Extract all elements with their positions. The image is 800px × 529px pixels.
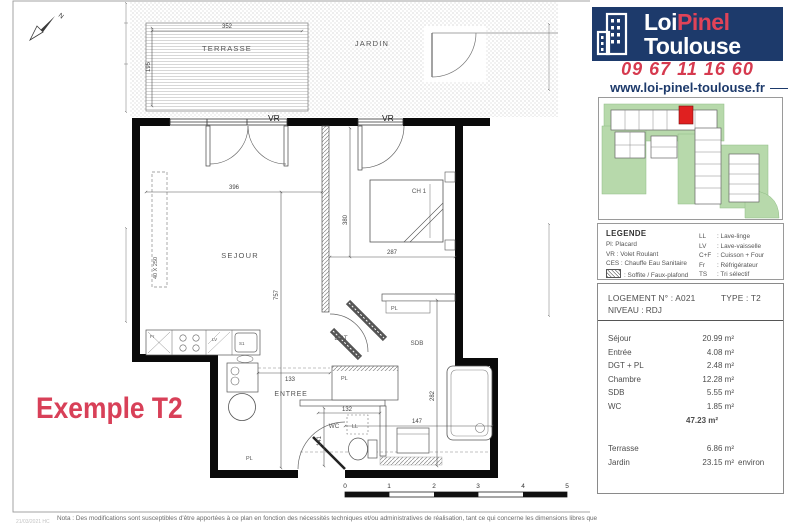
legend-item: Pl: Placard (606, 240, 698, 250)
windows (170, 119, 403, 125)
total-area: 47.23 m² (686, 414, 744, 428)
area-row: Chambre12.28 m² (608, 373, 744, 387)
svg-text:5: 5 (565, 483, 569, 490)
outdoor-areas: Terrasse6.86 m² Jardin23.15 m²environ (608, 442, 744, 469)
room-label-ch1: CH 1 (412, 188, 427, 195)
legend-item: LV: Lave-vaisselle (699, 242, 764, 252)
svg-text:1: 1 (387, 483, 391, 490)
vr-label-2: VR (382, 113, 394, 123)
dim-terrace-height: 195 (146, 61, 152, 72)
legend-item: TS: Tri sélectif (699, 270, 764, 280)
north-arrow-icon: N (30, 12, 65, 40)
dim-sejour-h: 757 (274, 289, 280, 300)
door-swings (206, 126, 404, 170)
legend-item: C+F: Cuisson + Four (699, 251, 764, 261)
example-watermark: Exemple T2 (36, 392, 183, 426)
area-row: DGT + PL2.48 m² (608, 359, 744, 373)
legend-item: VR : Volet Roulant (606, 250, 698, 260)
dim-ch1-h: 380 (343, 214, 349, 225)
website-link[interactable]: www.loi-pinel-toulouse.fr (592, 80, 783, 95)
legend-left-column: Pl: Placard VR : Volet Roulant CES : Cha… (606, 240, 698, 280)
washer-slot-label: LL (352, 424, 358, 430)
unit-details-panel: LOGEMENT N° : A021 TYPE : T2 NIVEAU : RD… (597, 283, 784, 494)
legend-item: CES : Chauffe Eau Sanitaire (606, 259, 698, 269)
building-logo-icon (592, 10, 638, 58)
dim-ch1-w: 287 (387, 250, 398, 256)
agency-logo: LoiPinel Toulouse (592, 7, 783, 61)
area-row: Terrasse6.86 m² (608, 442, 744, 456)
dim-terrace-width: 352 (222, 24, 233, 30)
room-label-sdb: SDB (411, 340, 424, 347)
pl-label-bottom: PL (246, 456, 253, 462)
legend-item: Fr: Réfrigérateur (699, 261, 764, 271)
dim-sdb-w: 147 (412, 419, 423, 425)
website-connector-line (770, 88, 788, 89)
room-label-sejour: SEJOUR (221, 251, 259, 260)
dishwasher-label: LV (212, 337, 217, 342)
area-row: Séjour20.99 m² (608, 332, 744, 346)
unit-number: LOGEMENT N° : A021 (608, 293, 695, 303)
north-label: N (57, 12, 65, 21)
phone-number: 09 67 11 16 60 (592, 59, 783, 80)
highlighted-unit (679, 106, 693, 124)
logo-part-pinel: Pinel (677, 9, 729, 35)
area-row: SDB5.55 m² (608, 386, 744, 400)
legend-title: LEGENDE (606, 229, 647, 238)
revision-ref: 21/03/2021 HC (16, 519, 50, 525)
logo-part-loi: Loi (644, 9, 677, 35)
svg-text:0: 0 (343, 483, 347, 490)
legend-right-column: LL: Lave-linge LV: Lave-vaisselle C+F: C… (699, 232, 764, 280)
fridge-label: Fr (150, 334, 155, 339)
garden-label: JARDIN (355, 39, 389, 48)
soffite-hatch-icon (606, 269, 621, 278)
site-map-drawing (599, 98, 782, 219)
terrace-label: TERRASSE (202, 44, 252, 53)
svg-text:2: 2 (432, 483, 436, 490)
unit-level: NIVEAU : RDJ (608, 305, 773, 315)
pl-label-sdb: PL (391, 306, 398, 312)
logo-wordmark: LoiPinel Toulouse (644, 10, 741, 58)
footer-note: Nota : Des modifications sont susceptibl… (57, 515, 787, 522)
area-row: Jardin23.15 m²environ (608, 456, 744, 470)
vr-label-1: VR (268, 113, 280, 123)
legend-panel: LEGENDE Pl: Placard VR : Volet Roulant C… (597, 223, 784, 280)
sink-label: S1 (239, 341, 245, 346)
svg-text:3: 3 (476, 483, 480, 490)
sejour-placard: 40 X 250 (152, 172, 167, 287)
divider (598, 320, 783, 321)
room-label-entree: ENTREE (274, 391, 307, 398)
area-table: Séjour20.99 m² Entrée4.08 m² DGT + PL2.4… (608, 332, 744, 469)
room-label-dgt: DGT (334, 335, 347, 342)
dim-sdb-h: 282 (430, 390, 436, 401)
area-row: Entrée4.08 m² (608, 346, 744, 360)
legend-item: LL: Lave-linge (699, 232, 764, 242)
dim-wc-w: 132 (342, 407, 353, 413)
plan-sheet: TERRASSE 352 195 JARDIN (0, 0, 800, 529)
terrace-area: TERRASSE 352 195 (146, 23, 308, 111)
dim-wc-h: 141 (317, 435, 323, 446)
logo-part-toulouse: Toulouse (644, 33, 741, 59)
scale-bar: 0 1 2 3 4 5 (343, 483, 569, 497)
residence-site-map (598, 97, 783, 220)
placard-dim-label: 40 X 250 (153, 257, 159, 279)
room-label-wc: WC (329, 423, 340, 430)
dim-entree-w: 133 (285, 377, 296, 383)
floor-plan: TERRASSE 352 195 JARDIN (0, 0, 590, 529)
bedroom-furniture (370, 172, 455, 250)
pl-label-entree: PL (341, 376, 348, 382)
toilet (349, 438, 368, 460)
dim-sejour-w: 396 (229, 185, 240, 191)
area-row: WC1.85 m² (608, 400, 744, 414)
washing-machine (397, 428, 429, 453)
legend-item: : Soffite / Faux-plafond (606, 269, 698, 281)
svg-text:4: 4 (521, 483, 525, 490)
water-heater (229, 394, 256, 421)
unit-header: LOGEMENT N° : A021 TYPE : T2 (608, 293, 773, 303)
unit-type: TYPE : T2 (721, 293, 761, 303)
